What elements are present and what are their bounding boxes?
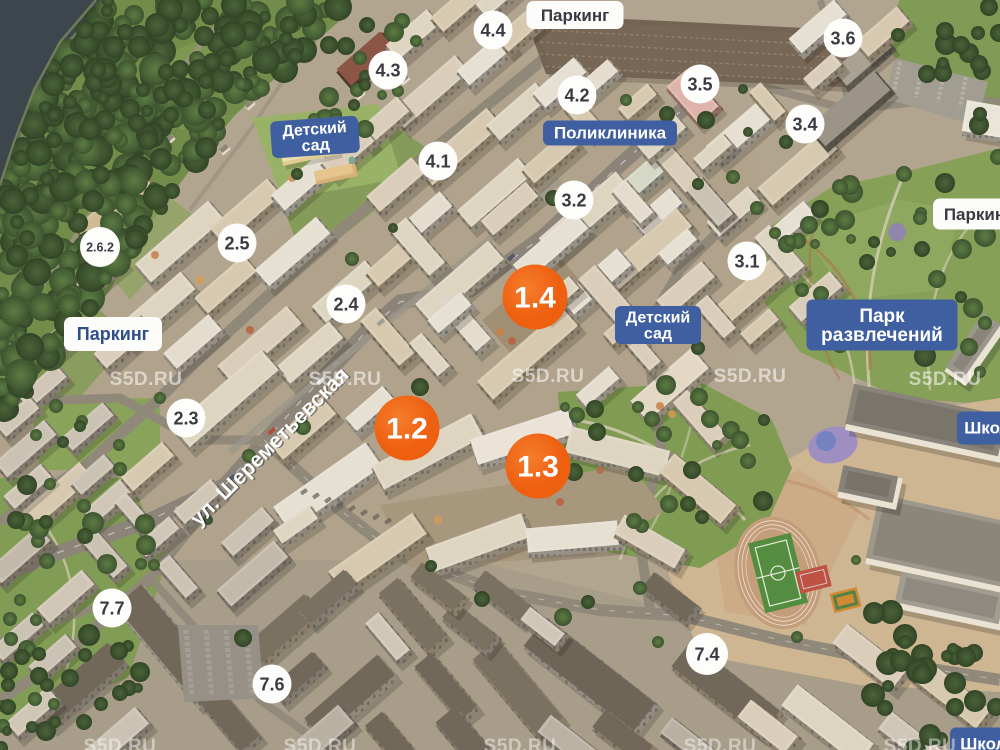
svg-text:3.4: 3.4 bbox=[792, 114, 817, 134]
svg-text:сад: сад bbox=[301, 136, 330, 155]
svg-text:S5D.RU: S5D.RU bbox=[884, 736, 957, 750]
svg-text:S5D.RU: S5D.RU bbox=[110, 369, 183, 390]
svg-text:2.4: 2.4 bbox=[333, 294, 358, 314]
svg-text:Паркинг: Паркинг bbox=[944, 205, 1000, 224]
svg-text:Поликлиника: Поликлиника bbox=[554, 124, 667, 143]
svg-text:S5D.RU: S5D.RU bbox=[309, 369, 382, 390]
svg-text:S5D.RU: S5D.RU bbox=[684, 736, 757, 750]
svg-text:сад: сад bbox=[644, 325, 672, 342]
svg-text:Детский: Детский bbox=[626, 309, 690, 326]
svg-text:2.6.2: 2.6.2 bbox=[86, 241, 114, 255]
svg-text:Парк: Парк bbox=[859, 306, 905, 327]
svg-text:S5D.RU: S5D.RU bbox=[512, 366, 585, 387]
svg-text:S5D.RU: S5D.RU bbox=[84, 736, 157, 750]
svg-text:3.6: 3.6 bbox=[830, 28, 855, 48]
svg-text:S5D.RU: S5D.RU bbox=[484, 736, 557, 750]
svg-text:3.2: 3.2 bbox=[561, 190, 586, 210]
svg-text:1.4: 1.4 bbox=[514, 282, 556, 315]
svg-text:4.4: 4.4 bbox=[480, 20, 505, 40]
svg-text:4.1: 4.1 bbox=[425, 151, 450, 171]
svg-text:2.5: 2.5 bbox=[224, 233, 249, 253]
svg-text:4.2: 4.2 bbox=[564, 85, 589, 105]
svg-text:Паркинг: Паркинг bbox=[77, 324, 150, 344]
svg-text:7.6: 7.6 bbox=[259, 674, 284, 694]
svg-text:S5D.RU: S5D.RU bbox=[714, 366, 787, 387]
svg-text:7.4: 7.4 bbox=[694, 644, 719, 664]
svg-text:Паркинг: Паркинг bbox=[541, 6, 609, 25]
svg-text:S5D.RU: S5D.RU bbox=[909, 369, 982, 390]
svg-text:7.7: 7.7 bbox=[99, 598, 124, 618]
svg-text:S5D.RU: S5D.RU bbox=[284, 736, 357, 750]
svg-text:1.2: 1.2 bbox=[386, 413, 428, 446]
svg-text:3.5: 3.5 bbox=[687, 74, 712, 94]
svg-text:Школа: Школа bbox=[964, 419, 1000, 438]
svg-text:1.3: 1.3 bbox=[517, 451, 559, 484]
svg-text:2.3: 2.3 bbox=[173, 408, 198, 428]
svg-text:4.3: 4.3 bbox=[375, 60, 400, 80]
svg-text:3.1: 3.1 bbox=[734, 251, 759, 271]
svg-text:развлечений: развлечений bbox=[821, 325, 943, 346]
svg-text:Школа: Школа bbox=[960, 735, 1000, 750]
